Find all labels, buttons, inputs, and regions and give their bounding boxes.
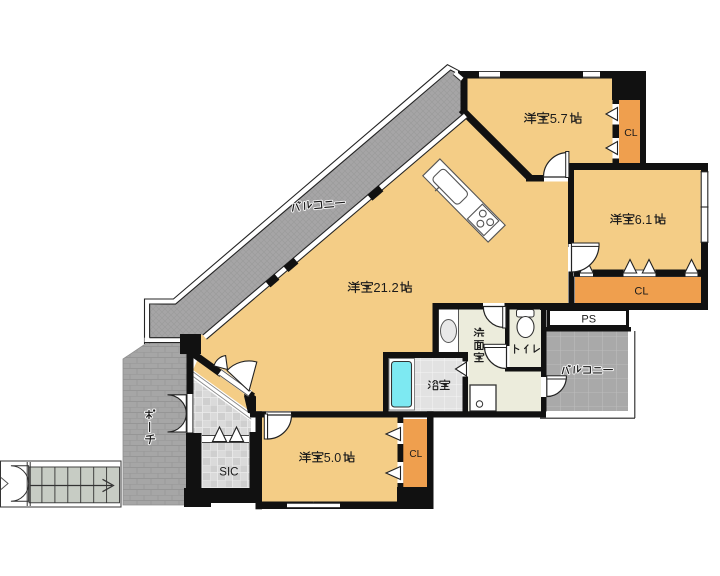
svg-text:5.0: 5.0 [324, 451, 341, 465]
svg-text:PS: PS [581, 314, 596, 326]
svg-text:CL: CL [634, 286, 648, 298]
svg-text:5.7: 5.7 [550, 111, 568, 126]
svg-text:CL: CL [624, 127, 638, 139]
svg-text:CL: CL [409, 449, 422, 460]
svg-text:SIC: SIC [219, 466, 238, 478]
svg-text:6.1: 6.1 [635, 213, 652, 227]
svg-text:21.2: 21.2 [373, 280, 398, 295]
